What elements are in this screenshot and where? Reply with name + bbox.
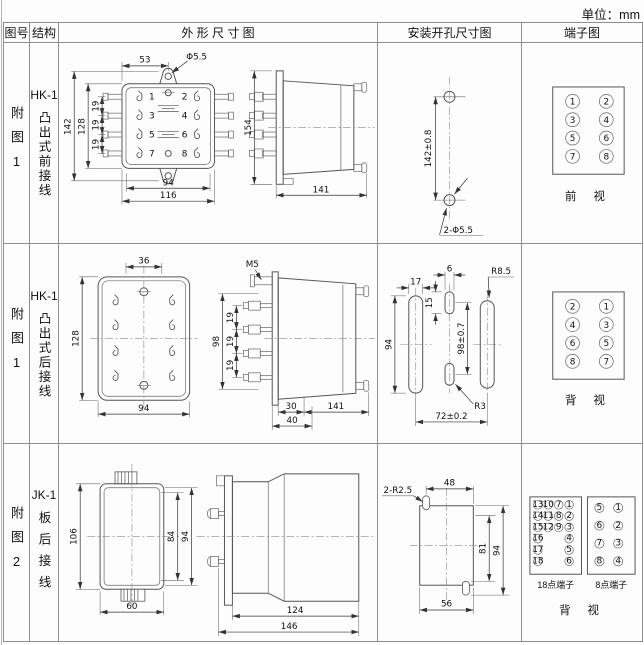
svg-text:1: 1 <box>570 98 576 108</box>
dim-106: 106 <box>70 528 80 545</box>
svg-text:1: 1 <box>566 500 572 510</box>
dim-94: 94 <box>163 178 175 188</box>
model-label-3: JK-1 <box>32 488 57 502</box>
svg-text:5: 5 <box>603 339 609 349</box>
svg-text:1: 1 <box>615 503 621 513</box>
svg-text:7: 7 <box>149 149 155 159</box>
structure-cell-3: JK-1 板后接线 <box>30 444 59 642</box>
svg-text:1: 1 <box>603 302 609 312</box>
dim-48: 48 <box>444 478 455 488</box>
unit-label: 单位：mm <box>582 4 640 23</box>
svg-text:4: 4 <box>566 534 572 544</box>
rear-studs <box>243 301 272 382</box>
figure-label-2: 附图1 <box>7 307 26 381</box>
model-label-1: HK-1 <box>30 88 57 102</box>
dim-m5: M5 <box>246 260 259 270</box>
svg-text:18: 18 <box>532 556 544 566</box>
terminal-diagram-front-view: 1 2 3 4 5 6 7 8 前 视 <box>522 43 642 243</box>
svg-text:7: 7 <box>556 500 562 510</box>
figure-cell-1: 附图1 <box>4 43 30 244</box>
dim-2r25: 2-R2.5 <box>384 486 413 496</box>
dim-116: 116 <box>160 191 177 201</box>
board-studs <box>207 509 224 567</box>
dim-17: 17 <box>410 277 421 287</box>
svg-text:2: 2 <box>603 98 609 108</box>
svg-text:6: 6 <box>566 556 572 566</box>
dim-124: 124 <box>287 606 304 616</box>
svg-text:3: 3 <box>566 522 572 532</box>
terminal-grid: 1 2 3 4 5 6 7 8 <box>566 94 614 163</box>
structure-label-2: 凸出式后接线 <box>35 312 54 399</box>
dim-98-07: 98±0.7 <box>457 322 467 354</box>
svg-text:5: 5 <box>570 134 576 144</box>
outline-cell-3: 106 60 84 94 <box>59 444 378 642</box>
dim-94c: 94 <box>384 339 394 351</box>
terminal-diagram-back-view: 2 1 4 3 6 5 8 7 背 视 <box>522 244 642 443</box>
spec-table: 图号 结构 外 形 尺 寸 图 安装开孔尺寸图 端子图 附图1 HK-1 凸出式… <box>3 22 643 642</box>
svg-text:7: 7 <box>603 358 609 368</box>
terminal-cell-3: 13 10 7 1 14 11 8 2 15 12 9 3 16 4 <box>522 444 643 642</box>
view-label: 前 视 <box>565 189 612 203</box>
svg-text:11: 11 <box>543 511 554 521</box>
svg-text:7: 7 <box>597 539 603 549</box>
svg-text:3: 3 <box>615 539 621 549</box>
figure-cell-2: 附图1 <box>4 244 30 444</box>
structure-label-3: 板后接线 <box>35 511 54 597</box>
terminal-grid-18: 13 10 7 1 14 11 8 2 15 12 9 3 16 4 <box>532 500 573 567</box>
model-label-2: HK-1 <box>30 289 57 303</box>
dim-r3: R3 <box>474 402 486 412</box>
svg-text:2: 2 <box>615 521 621 531</box>
svg-text:19: 19 <box>92 101 102 112</box>
terminal-cell-2: 2 1 4 3 6 5 8 7 背 视 <box>522 244 643 444</box>
view-label: 背 视 <box>559 603 606 617</box>
install-drawing-rear-wiring: 6 17 15 94 98±0.7 72±0.2 R8.5 <box>378 244 521 443</box>
header-outline: 外 形 尺 寸 图 <box>59 23 378 43</box>
install-cell-2: 6 17 15 94 98±0.7 72±0.2 R8.5 <box>378 244 522 444</box>
svg-text:4: 4 <box>182 112 188 122</box>
terminal-grid: 2 1 4 3 6 5 8 7 <box>566 299 614 368</box>
svg-text:8: 8 <box>556 511 562 521</box>
dim-phi55: Φ5.5 <box>186 52 207 62</box>
dim-36: 36 <box>138 256 150 266</box>
header-row: 图号 结构 外 形 尺 寸 图 安装开孔尺寸图 端子图 <box>4 23 643 43</box>
outline-drawing-front-wiring: 1 2 3 4 5 6 7 8 53 Φ5.5 <box>59 43 377 243</box>
svg-text:16: 16 <box>532 534 544 544</box>
dim-holes: 2-Φ5.5 <box>444 226 473 236</box>
structure-label-1: 凸出式前接线 <box>35 111 54 198</box>
header-figure: 图号 <box>4 23 30 43</box>
dim-72-02: 72±0.2 <box>435 412 467 422</box>
dim-60: 60 <box>126 602 137 612</box>
svg-text:3: 3 <box>603 321 609 331</box>
svg-text:9: 9 <box>556 522 562 532</box>
svg-text:5: 5 <box>566 545 572 555</box>
install-drawing-front-wiring: 142±0.8 2-Φ5.5 <box>378 43 521 243</box>
svg-text:6: 6 <box>570 339 576 349</box>
svg-text:19: 19 <box>226 336 236 347</box>
dim-56: 56 <box>441 600 452 610</box>
svg-text:8: 8 <box>597 557 603 567</box>
dim-94b: 94 <box>138 404 150 414</box>
svg-text:5: 5 <box>149 131 155 141</box>
dim-84: 84 <box>167 531 177 543</box>
outline-drawing-board-wiring: 106 60 84 94 <box>59 444 377 641</box>
svg-text:19: 19 <box>92 120 102 131</box>
svg-text:8: 8 <box>603 153 609 163</box>
dim-53: 53 <box>139 55 150 65</box>
svg-text:19: 19 <box>226 312 236 323</box>
dim-hole-spacing: 142±0.8 <box>424 130 434 168</box>
dim-94d: 94 <box>181 531 191 543</box>
dim-141: 141 <box>313 185 330 195</box>
svg-text:2: 2 <box>566 511 572 521</box>
table-row-3: 附图2 JK-1 板后接线 <box>4 444 643 642</box>
header-structure: 结构 <box>30 23 59 43</box>
terminal-grid-8: 5 1 6 2 7 3 8 4 <box>595 503 623 567</box>
page-edge <box>1 0 2 645</box>
front-terminal-numbers: 1 2 3 4 5 6 7 8 <box>137 91 200 160</box>
svg-text:6: 6 <box>182 131 188 141</box>
dim-81: 81 <box>479 543 489 554</box>
terminal-cell-1: 1 2 3 4 5 6 7 8 前 视 <box>522 43 643 244</box>
svg-text:19: 19 <box>92 139 102 150</box>
svg-text:4: 4 <box>615 557 621 567</box>
outline-drawing-rear-wiring: 36 128 94 M5 <box>59 244 377 443</box>
dim-94e: 94 <box>493 544 503 556</box>
dim-30: 30 <box>286 402 297 412</box>
install-cell-3: 48 2-R2.5 81 94 56 <box>378 444 522 642</box>
dim-146: 146 <box>281 622 298 632</box>
header-install: 安装开孔尺寸图 <box>378 23 522 43</box>
install-drawing-board-wiring: 48 2-R2.5 81 94 56 <box>378 444 521 641</box>
outline-cell-1: 1 2 3 4 5 6 7 8 53 Φ5.5 <box>59 43 378 244</box>
dimension-spec-sheet: 单位：mm 图号 结构 外 形 尺 寸 图 安装开孔尺寸图 端子图 附图1 HK… <box>0 0 644 645</box>
dim-154: 154 <box>244 119 254 136</box>
terminal-diagram-18-8-point: 13 10 7 1 14 11 8 2 15 12 9 3 16 4 <box>522 444 642 641</box>
terminal8-label: 8点端子 <box>595 579 627 590</box>
svg-text:3: 3 <box>570 116 576 126</box>
table-row-2: 附图1 HK-1 凸出式后接线 <box>4 244 643 444</box>
install-cell-1: 142±0.8 2-Φ5.5 <box>378 43 522 244</box>
svg-text:5: 5 <box>597 503 603 513</box>
svg-text:8: 8 <box>182 149 188 159</box>
svg-text:12: 12 <box>543 522 554 532</box>
svg-text:2: 2 <box>182 93 188 103</box>
front-pins <box>103 93 233 157</box>
figure-cell-3: 附图2 <box>4 444 30 642</box>
svg-text:2: 2 <box>570 302 576 312</box>
dim-40: 40 <box>287 416 298 426</box>
dim-r85: R8.5 <box>491 267 511 277</box>
svg-text:10: 10 <box>543 500 555 510</box>
svg-text:6: 6 <box>603 134 609 144</box>
svg-text:17: 17 <box>532 545 543 555</box>
svg-text:1: 1 <box>149 93 155 103</box>
table-row-1: 附图1 HK-1 凸出式前接线 <box>4 43 643 244</box>
dim-6: 6 <box>447 265 453 275</box>
structure-cell-2: HK-1 凸出式后接线 <box>30 244 59 444</box>
svg-text:3: 3 <box>149 112 155 122</box>
header-terminal: 端子图 <box>522 23 643 43</box>
outline-cell-2: 36 128 94 M5 <box>59 244 378 444</box>
figure-label-1: 附图1 <box>7 106 26 180</box>
figure-label-3: 附图2 <box>7 506 26 580</box>
dim-128b: 128 <box>72 330 82 347</box>
svg-text:4: 4 <box>603 116 609 126</box>
svg-text:6: 6 <box>597 521 603 531</box>
dim-15: 15 <box>425 297 435 308</box>
dim-98: 98 <box>212 336 222 347</box>
dim-141b: 141 <box>328 402 345 412</box>
svg-text:7: 7 <box>570 153 576 163</box>
dim-128: 128 <box>78 118 88 135</box>
structure-cell-1: HK-1 凸出式前接线 <box>30 43 59 244</box>
svg-text:4: 4 <box>570 321 576 331</box>
svg-text:8: 8 <box>570 358 576 368</box>
view-label: 背 视 <box>565 393 612 407</box>
terminal18-label: 18点端子 <box>537 579 574 590</box>
dim-142: 142 <box>64 118 74 135</box>
svg-text:19: 19 <box>226 360 236 371</box>
